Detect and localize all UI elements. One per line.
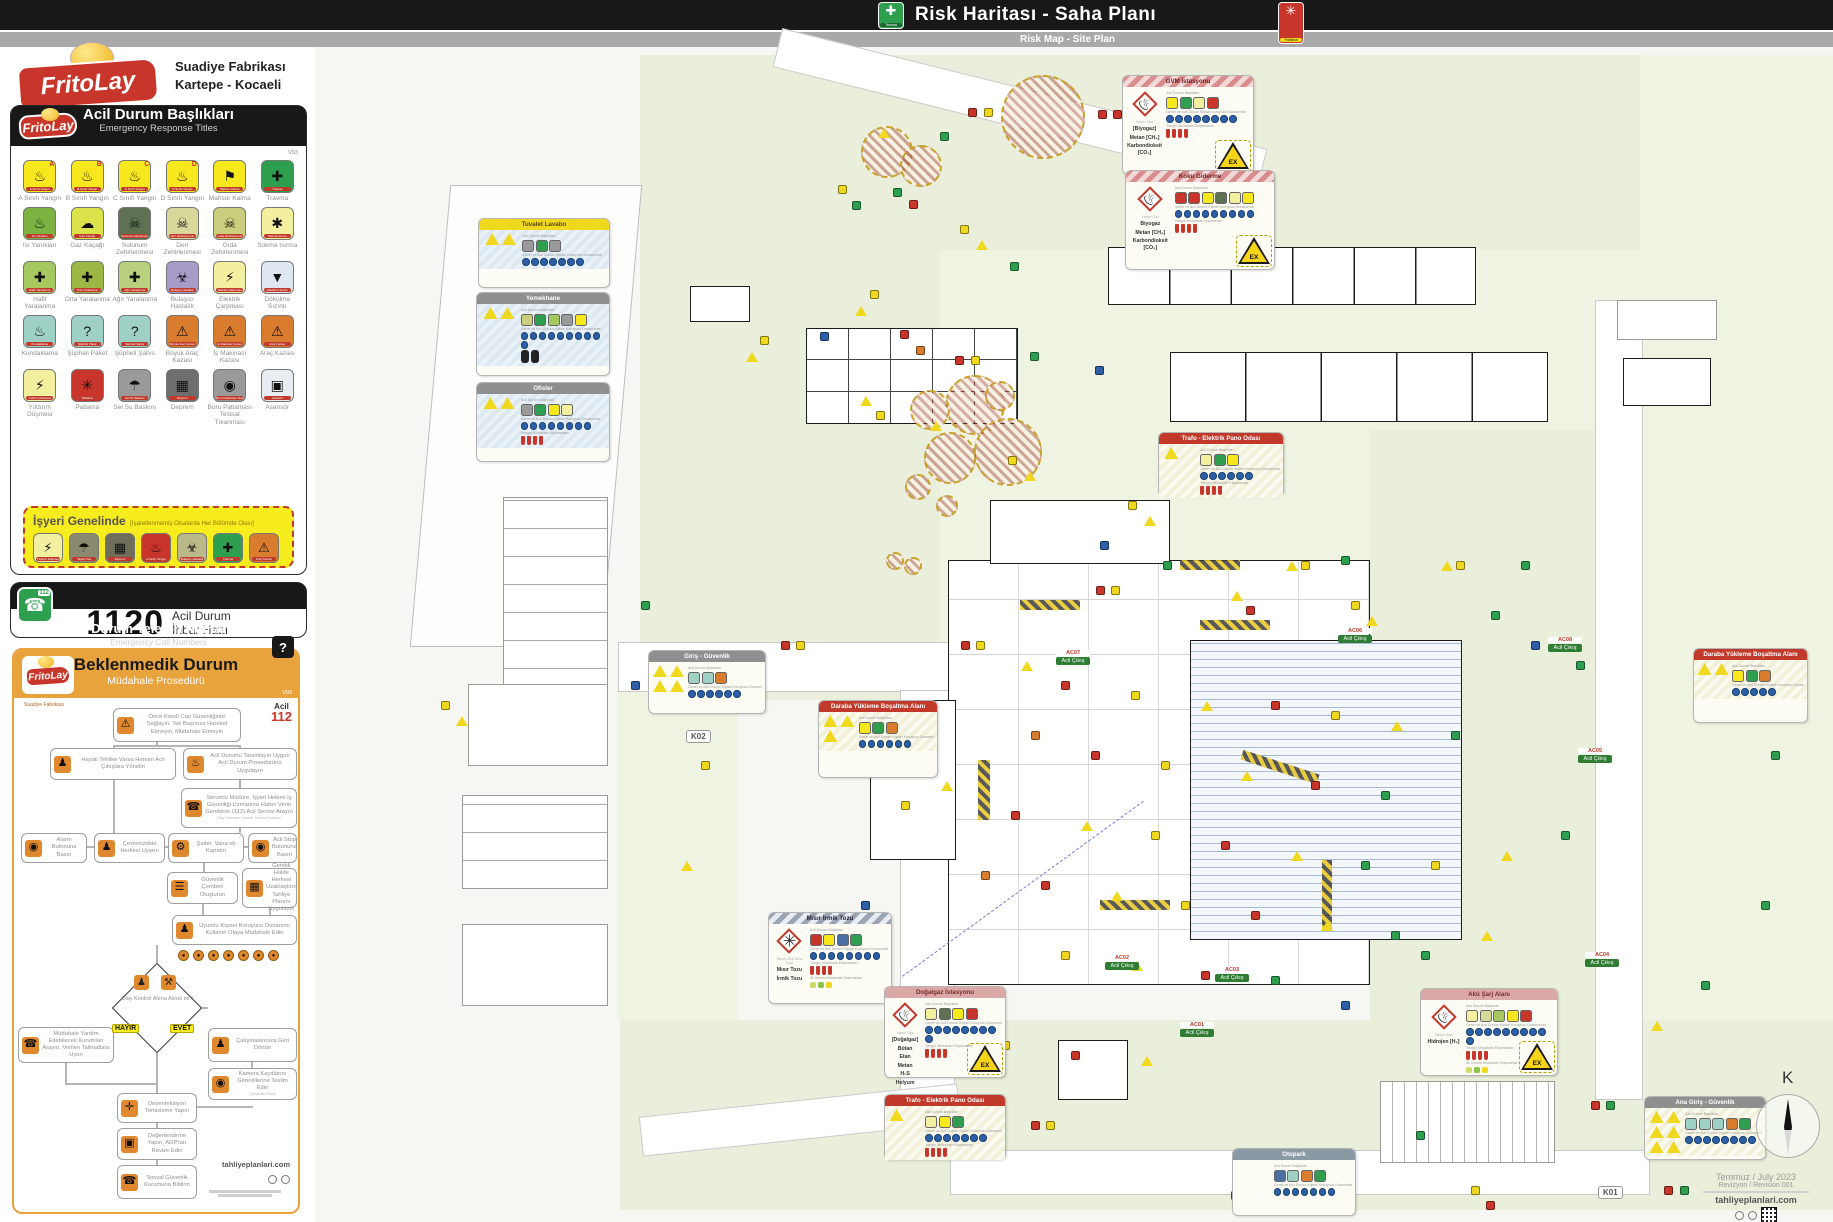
icon-glyph: ✱ <box>271 215 283 232</box>
safety-sign-icon <box>1606 1101 1615 1110</box>
info-box-left: ♨Yanıcı GazHidrojen [H₂] <box>1424 1003 1463 1073</box>
storage-tank <box>924 432 976 484</box>
firstaid-icon <box>1466 1067 1472 1073</box>
info-box-body: Acil Durum BaşlıklarıGenel ve Acil Durum… <box>649 662 765 701</box>
info-box-body: Acil Durum BaşlıklarıGenel ve Acil Durum… <box>1233 1160 1355 1199</box>
flow-step-icon: ☎ <box>185 800 202 817</box>
ppe-dots <box>1175 210 1267 218</box>
ppe-dot-icon <box>1229 115 1237 123</box>
acil-112-tag: Acil112 <box>271 702 292 723</box>
chemical-caption: Tanım Zirai Ürün Tozu <box>772 957 807 965</box>
footer-site-link: tahliyeplanlari.com <box>200 1160 290 1169</box>
chemical-caption: Yanıcı Gaz <box>1136 120 1154 124</box>
mini-hazard-icon <box>521 404 533 416</box>
building <box>1623 358 1711 406</box>
ppe-icon: ● <box>253 950 264 961</box>
compass-needle <box>1784 1099 1792 1155</box>
extinguisher-icon <box>925 1049 929 1058</box>
flow-step-10: ▦Gerekli Halde Herkesi Uzaklaştırın Tahl… <box>242 868 297 908</box>
safety-sign-icon <box>1113 110 1122 119</box>
extinguisher-icon <box>539 436 543 445</box>
flow-step-text: Şalter, Vana vb Kapatın <box>192 841 240 855</box>
ppe-dot-icon <box>1730 1136 1738 1144</box>
safety-sign-icon <box>1095 366 1104 375</box>
ppe-dot-icon <box>549 258 557 266</box>
icon-caption: İş Makinası Kazası <box>216 342 243 346</box>
mini-hazard-icon <box>925 1008 937 1020</box>
safety-sign-icon <box>960 225 969 234</box>
emergency-item-label: Boru Patlaması Tesisat Tıkanması <box>207 404 253 427</box>
safety-sign-icon <box>1251 911 1260 920</box>
info-box-left <box>480 307 518 363</box>
info-box: Trafo - Elektrik Pano OdasıAcil Durum Ba… <box>1158 432 1284 496</box>
emergency-exit-label: AC03Acil Çıkış <box>1215 967 1249 982</box>
info-box: Akü Şarj Alanı♨Yanıcı GazHidrojen [H₂]Ac… <box>1420 988 1558 1076</box>
ppe-dot-icon <box>1538 1028 1546 1036</box>
safety-sign-icon <box>870 290 879 299</box>
class-letter: D <box>192 161 197 168</box>
emergency-item-label: Dökülme Sızıntı <box>255 296 301 311</box>
mini-hazard-icon <box>1301 1170 1313 1182</box>
flow-step-icon: ♟ <box>98 840 115 857</box>
flow-step-text: Çalışmalarınıza Geri Dönün <box>232 1038 293 1052</box>
caption-titles: Acil Durum Başlıkları <box>810 928 888 933</box>
emergency-item-label: Bulaşıcı Hastalık <box>160 296 206 311</box>
ppe-dot-icon <box>540 258 548 266</box>
icon-glyph: ▣ <box>271 377 284 394</box>
flow-step-text: Müdahale Yardım Edebilecek Kurumları Ara… <box>42 1031 110 1060</box>
ppe-dot-icon <box>531 258 539 266</box>
caption-ppe: Genel ve Acil Durum Kişisel Koruyucu Don… <box>925 1129 1002 1134</box>
ex-text: EX <box>981 1062 990 1069</box>
caption-titles: Acil Durum Başlıkları <box>521 398 606 403</box>
safety-sign-icon <box>852 201 861 210</box>
ppe-dots <box>925 1026 1002 1043</box>
hazard-strip <box>1200 620 1270 630</box>
extinguisher-icon <box>1178 129 1182 138</box>
emergency-item-label: C Sınıfı Yangın <box>113 195 156 203</box>
mini-hazard-icon <box>837 934 849 946</box>
info-box: Daraba Yükleme Boşaltma AlanıAcil Durum … <box>1693 648 1808 723</box>
info-box: Koku Giderme♨Yanıcı GazBiyogazMetan [CH₄… <box>1125 170 1275 270</box>
flow-step-12: ☎Müdahale Yardım Edebilecek Kurumları Ar… <box>18 1027 114 1063</box>
info-box-right: Acil Durum BaşlıklarıGenel ve Acil Durum… <box>1274 1163 1352 1196</box>
info-box-left <box>480 397 518 445</box>
icon-glyph: ☂ <box>78 540 90 556</box>
safety-sign-icon <box>1246 606 1255 615</box>
exit-word: Acil Çıkış <box>1056 657 1090 665</box>
travma-icon: ✚Travma <box>261 160 294 193</box>
ppe-dot-icon <box>1493 1028 1501 1036</box>
emergency-item: ⚠Büyük Araç KazasıBüyük Araç Kazası <box>160 315 206 365</box>
safety-sign-icon <box>1096 586 1105 595</box>
ppe-dot-icon <box>925 1035 933 1043</box>
info-box-left: ♨Yanıcı Gaz[Biyogaz]Metan [CH₄]Karbondio… <box>1126 90 1163 156</box>
emergency-item: ☁Gaz KaçağıGaz Kaçağı <box>65 207 111 257</box>
warning-triangle-icon <box>500 307 514 319</box>
building <box>1617 300 1717 340</box>
decision-icon-left: ♟ <box>134 975 149 990</box>
ppe-dot-icon <box>1274 1188 1282 1196</box>
safety-sign-icon <box>981 871 990 880</box>
emergency-exit-label: AC04Acil Çıkış <box>1585 952 1619 967</box>
flow-step-text: Sosyal Güvenlik Kurumuna Bildirin <box>141 1175 193 1189</box>
mini-hazard-icon <box>549 240 561 252</box>
ppe-dots <box>1274 1188 1352 1196</box>
footer-revision: Revizyon / Revision 001 <box>1690 1182 1822 1189</box>
safety-sign-icon <box>1100 541 1109 550</box>
emergency-titles-panel: FritoLay Acil Durum Başlıkları Emergency… <box>10 105 307 575</box>
emergency-item: ☠Deri ZehirlenmesiDeri Zehirlenmesi <box>160 207 206 257</box>
ppe-dot-icon <box>530 332 538 340</box>
icon-glyph: ✚ <box>129 269 141 286</box>
emergency-item: ✚Hafif YaralanmaHafif Yaralanma <box>17 261 63 311</box>
ppe-dot-icon <box>1283 1188 1291 1196</box>
mini-hazard-icon <box>536 240 548 252</box>
safety-sign-icon <box>901 801 910 810</box>
emergency-item: ▣AsansörAsansör <box>255 369 301 427</box>
emergency-item: ☣Bulaşıcı HastalıkBulaşıcı Hastalık <box>160 261 206 311</box>
emergency-item: ✳PatlamaPatlama <box>65 369 111 427</box>
fire-equipment-row <box>1175 224 1271 233</box>
flow-step-icon: ♟ <box>54 756 71 773</box>
icon-glyph: ⚑ <box>223 168 236 185</box>
safety-sign-icon <box>1151 831 1160 840</box>
ex-text: EX <box>1533 1060 1542 1067</box>
safety-sign-icon <box>971 356 980 365</box>
ppe-dot-icon <box>733 690 741 698</box>
ppe-dot-icon <box>1175 115 1183 123</box>
chemical-name: Mısır Tozu <box>777 967 802 974</box>
warning-triangle-icon <box>1164 447 1178 459</box>
general-box-note: [İşaretlenmemiş Olsalarda Her Bölümde Ol… <box>130 521 254 527</box>
info-box-title: Daraba Yükleme Boşaltma Alanı <box>1694 649 1807 660</box>
safety-sign-icon <box>1201 971 1210 980</box>
emergency-item-label: İş Makinası Kazası <box>207 350 253 365</box>
emergency-item-label: Isı Yanıkları <box>23 242 57 250</box>
safety-sign-icon <box>1271 976 1280 985</box>
travma-icon: ✚ Travma <box>878 2 904 29</box>
warning-triangles <box>483 307 514 319</box>
mini-icon-row <box>1466 1010 1554 1022</box>
emergency-item: ♨Isı YanıklarıIsı Yanıkları <box>17 207 63 257</box>
info-box-title: Koku Giderme <box>1126 171 1274 182</box>
safety-sign-icon <box>940 132 949 141</box>
flow-step-text: Alarm Butonuna Basın <box>45 837 83 859</box>
emergency-item-label: Şüpheli Paket <box>67 350 107 358</box>
safety-sign-icon <box>1491 611 1500 620</box>
extinguisher-icon <box>1193 224 1197 233</box>
info-box-left <box>1162 447 1197 495</box>
icon-glyph: ☣ <box>176 269 189 286</box>
ghs-flame-pictogram: ♨ <box>1132 91 1157 116</box>
safety-sign-icon <box>1576 661 1585 670</box>
mini-hazard-icon <box>1732 670 1744 682</box>
hazard-strip <box>1180 560 1240 570</box>
mini-hazard-icon <box>952 1008 964 1020</box>
emergency-item: ⚠Araç KazasıAraç Kazası <box>255 315 301 365</box>
ppe-dot-icon <box>715 690 723 698</box>
phone-panel-subtitle: Emergency Call Numbers <box>11 637 306 647</box>
phone-panel-title: Acil Durum Telefon Numaraları <box>11 619 306 637</box>
orta-yaralanma-icon: ✚Orta Yaralanma <box>71 261 104 294</box>
safety-sign-icon <box>1091 751 1100 760</box>
chemical-name: [Doğalgaz] <box>892 1037 919 1044</box>
icon-caption: D Sınıfı Yangın <box>169 187 196 191</box>
icon-glyph: ✚ <box>223 540 234 556</box>
storage-tank <box>904 557 922 575</box>
safety-sign-icon <box>1664 1186 1673 1195</box>
icon-caption: Araç Kazası <box>252 557 276 561</box>
warning-triangle-icon <box>1698 663 1712 675</box>
extinguisher-icon <box>937 1049 941 1058</box>
flow-step-icon: ⚙ <box>172 840 189 857</box>
ppe-dot-icon <box>970 1134 978 1142</box>
icon-glyph: ☠ <box>223 215 236 232</box>
safety-sign-icon <box>1421 951 1430 960</box>
flow-step-7: ⚙Şalter, Vana vb Kapatın <box>168 833 244 863</box>
decision-icon-right: ⚒ <box>161 975 176 990</box>
mini-icon-row <box>925 1008 1002 1020</box>
mini-hazard-icon <box>1493 1010 1505 1022</box>
icon-caption: Asansör <box>264 396 291 400</box>
icon-glyph: ▦ <box>114 540 126 556</box>
flow-step-11: ♟Uyumlu Kişisel Koruyucu Donanımı Kullan… <box>172 915 297 945</box>
ppe-dot-icon <box>688 690 696 698</box>
bula-c-hastal-k-icon: ☣Bulaşıcı Hastalık <box>166 261 199 294</box>
ppe-dot-icon <box>1739 1136 1747 1144</box>
label-no: HAYIR <box>112 1024 139 1033</box>
icon-caption: Yıldırım Düşmesi <box>36 557 60 561</box>
safety-sign-icon <box>1451 731 1460 740</box>
info-box-right: Acil Durum BaşlıklarıGenel ve Acil Durum… <box>521 397 606 445</box>
mini-hazard-icon <box>715 672 727 684</box>
fire-equipment-row <box>925 1148 1002 1157</box>
exit-code: AC04 <box>1585 952 1619 958</box>
mini-hazard-icon <box>1227 454 1239 466</box>
map-footer: Temmuz / July 2023Revizyon / Revision 00… <box>1690 1172 1822 1222</box>
emergency-exit-label: AC01Acil Çıkış <box>1180 1022 1214 1037</box>
ppe-dot-icon <box>1310 1188 1318 1196</box>
icon-glyph: ✚ <box>271 168 283 185</box>
icon-caption: Solunum Zehirlenmesi <box>121 234 148 238</box>
warning-triangle-icon <box>1667 1111 1681 1123</box>
mini-hazard-icon <box>823 934 835 946</box>
ppe-icon: ● <box>178 950 189 961</box>
safety-sign-icon <box>955 356 964 365</box>
safety-sign-icon <box>893 188 902 197</box>
extinguisher-icon <box>1212 486 1216 495</box>
warning-triangle-icon <box>823 730 837 742</box>
ppe-dot-icon <box>1741 688 1749 696</box>
deri-zehirlenmesi-icon: ☠Deri Zehirlenmesi <box>166 207 199 240</box>
chemical-name: Metan [CH₄] <box>1130 135 1160 142</box>
ppe-dot-icon <box>575 332 583 340</box>
ppe-dot-icon <box>584 422 592 430</box>
flow-connector <box>202 904 204 915</box>
safety-sign-icon <box>1071 1051 1080 1060</box>
icon-caption: Mahsur Kalma <box>216 187 243 191</box>
ppe-dot-icon <box>855 952 863 960</box>
mini-icon-row <box>925 1116 1002 1128</box>
mini-hazard-icon <box>575 314 587 326</box>
caption-ppe: Genel ve Acil Durum Kişisel Koruyucu Don… <box>1466 1023 1554 1028</box>
sidebar-footer: tahliyeplanlari.com <box>200 1160 290 1199</box>
firstaid-icon <box>818 982 824 988</box>
safety-sign-icon <box>1011 811 1020 820</box>
info-box-body: Acil Durum BaşlıklarıGenel ve Acil Durum… <box>1645 1108 1765 1156</box>
ta-k-n-sel-icon: ☂Taşkın Sel <box>69 533 99 563</box>
mini-icon-row <box>522 240 606 252</box>
flow-step-subtext: (Güvenlik Ekibi) <box>232 1092 293 1097</box>
icon-glyph: ☠ <box>176 215 189 232</box>
safety-sign-icon <box>1521 561 1530 570</box>
ppe-dot-icon <box>1193 115 1201 123</box>
warning-triangle-icon <box>653 665 667 677</box>
building <box>462 795 608 889</box>
warning-triangle-icon <box>502 233 516 245</box>
icon-caption: Deprem <box>169 396 196 400</box>
icon-glyph: ♨ <box>33 168 46 185</box>
safety-sign-icon <box>1271 701 1280 710</box>
deprem-icon: ▦Deprem <box>105 533 135 563</box>
safety-sign-icon <box>1486 1201 1495 1210</box>
footer-date: Temmuz / July 2023 <box>1690 1172 1822 1182</box>
ppe-dot-icon <box>1193 210 1201 218</box>
safety-sign-icon <box>961 641 970 650</box>
ppe-dot-icon <box>521 422 529 430</box>
safety-sign-icon <box>1041 881 1050 890</box>
info-box-title: Doğalgaz İstasyonu <box>885 987 1005 998</box>
info-box-right: Acil Durum BaşlıklarıGenel ve Acil Durum… <box>521 307 606 363</box>
flow-step-text: Gerekli Halde Herkesi Uzaklaştırın Tahli… <box>266 863 297 914</box>
y-ld-r-m-d-mesi-icon: ⚡Yıldırım Düşmesi <box>33 533 63 563</box>
safety-sign-icon <box>1008 456 1017 465</box>
mini-hazard-icon <box>1274 1170 1286 1182</box>
icon-caption: Isı Yanıkları <box>26 234 53 238</box>
warning-triangle-icon <box>670 680 684 692</box>
safety-sign-icon <box>1680 1186 1689 1195</box>
ppe-dot-icon <box>810 952 818 960</box>
safety-sign-icon <box>701 761 710 770</box>
chemical-name: Biyogaz <box>1140 221 1160 228</box>
flow-step-icon: ♟ <box>212 1037 229 1054</box>
flow-connector <box>203 863 205 872</box>
mini-hazard-icon <box>939 1116 951 1128</box>
deprem-icon: ▦Deprem <box>166 369 199 402</box>
chemical-name: Metan <box>898 1063 913 1070</box>
flow-connector <box>156 945 158 963</box>
safety-sign-icon <box>984 108 993 117</box>
warning-triangle-icon <box>483 397 497 409</box>
emergency-item-label: B Sınıfı Yangın <box>66 195 109 203</box>
info-box: Tuvalet LavaboAcil Durum BaşlıklarıGenel… <box>478 218 610 288</box>
extinguisher-icon <box>1172 129 1176 138</box>
emergency-item-label: Gıda Zehirlenmesi <box>207 242 253 257</box>
ex-text: EX <box>1250 254 1259 261</box>
ppe-dot-icon <box>1202 210 1210 218</box>
flow-step-17: ☎Sosyal Güvenlik Kurumuna Bildirin <box>117 1165 197 1199</box>
ppe-dot-icon <box>1712 1136 1720 1144</box>
exit-word: Acil Çıkış <box>1578 755 1612 763</box>
emergency-exit-label: AC05Acil Çıkış <box>1578 748 1612 763</box>
caption-titles: Acil Durum Başlıkları <box>521 308 606 313</box>
emergency-icon-grid: ♨AA Sınıfı YangınA Sınıfı Yangın♨BB Sını… <box>11 146 306 426</box>
ppe-dots <box>521 332 606 349</box>
ppe-dot-icon <box>895 740 903 748</box>
decision-question: Olay Kontrol Altına Alındı mı? <box>120 996 194 1026</box>
subtitle-bar <box>0 32 1833 47</box>
chemical-name: Helyum <box>896 1080 915 1087</box>
flow-connector <box>65 1083 157 1085</box>
warning-triangle-icon <box>653 680 667 692</box>
ppe-dot-icon <box>979 1026 987 1034</box>
exit-word: Acil Çıkış <box>1215 974 1249 982</box>
icon-caption: A Sınıfı Yangın <box>144 557 168 561</box>
warning-triangles <box>485 233 516 245</box>
caption-ppe: Genel ve Acil Durum Kişisel Koruyucu Don… <box>925 1021 1002 1026</box>
fire-equipment-row <box>810 966 888 975</box>
ppe-dot-icon <box>584 332 592 340</box>
ppe-dot-icon <box>566 332 574 340</box>
safety-sign-icon <box>1131 691 1140 700</box>
ppe-dot-icon <box>575 422 583 430</box>
hafif-yaralanma-icon: ✚Hafif Yaralanma <box>23 261 56 294</box>
ppe-dots <box>522 258 606 266</box>
extinguisher-icon <box>527 436 531 445</box>
mini-hazard-icon <box>1759 670 1771 682</box>
warning-triangles <box>1650 1111 1681 1153</box>
emergency-item: ⚡Yıldırım DüşmesiYıldırım Düşmesi <box>17 369 63 427</box>
ppe-dot-icon <box>1218 472 1226 480</box>
safety-sign-icon <box>1701 981 1710 990</box>
ppe-dot-icon <box>925 1026 933 1034</box>
extinguisher-icon <box>822 966 826 975</box>
icon-glyph: ⚠ <box>258 540 270 556</box>
exit-code: AC02 <box>1105 955 1139 961</box>
info-box: YemekhaneAcil Durum BaşlıklarıGenel ve A… <box>476 292 610 376</box>
ex-text: EX <box>1229 159 1238 166</box>
mini-icon-row <box>521 314 606 326</box>
warning-triangle-icon <box>1650 1126 1664 1138</box>
extinguisher-icon <box>828 966 832 975</box>
safety-sign-icon <box>820 332 829 341</box>
emergency-item-label: Araç Kazası <box>260 350 295 358</box>
firstaid-icon <box>1474 1067 1480 1073</box>
mini-hazard-icon <box>1726 1118 1738 1130</box>
fire-equipment-row <box>1166 129 1250 138</box>
icon-glyph: ✳ <box>81 377 93 394</box>
ppe-dot-icon <box>1732 688 1740 696</box>
bula-c-hastal-k-icon: ☣Bulaşıcı Hastalık <box>177 533 207 563</box>
ppe-dot-icon <box>961 1134 969 1142</box>
mini-hazard-icon <box>810 934 822 946</box>
caption-fire-equipment: Yangın Müdahale Ekipmanları <box>1175 219 1271 224</box>
emergency-item-label: D Sınıfı Yangın <box>161 195 204 203</box>
extinguisher-icon <box>937 1148 941 1157</box>
icon-caption: Gaz Kaçağı <box>74 234 101 238</box>
mini-hazard-icon <box>1193 97 1205 109</box>
ppe-dot-icon <box>530 422 538 430</box>
ppe-dot-icon <box>557 422 565 430</box>
general-box-title: İşyeri Genelinde <box>33 514 126 528</box>
icon-glyph: ♨ <box>81 168 94 185</box>
flow-step-icon: ◉ <box>212 1076 229 1093</box>
mini-icon-row <box>1200 454 1280 466</box>
chemical-caption: Yanıcı Gaz <box>1142 215 1160 219</box>
info-box-title: Ana Giriş - Güvenlik <box>1645 1097 1765 1108</box>
safety-sign-icon <box>968 108 977 117</box>
